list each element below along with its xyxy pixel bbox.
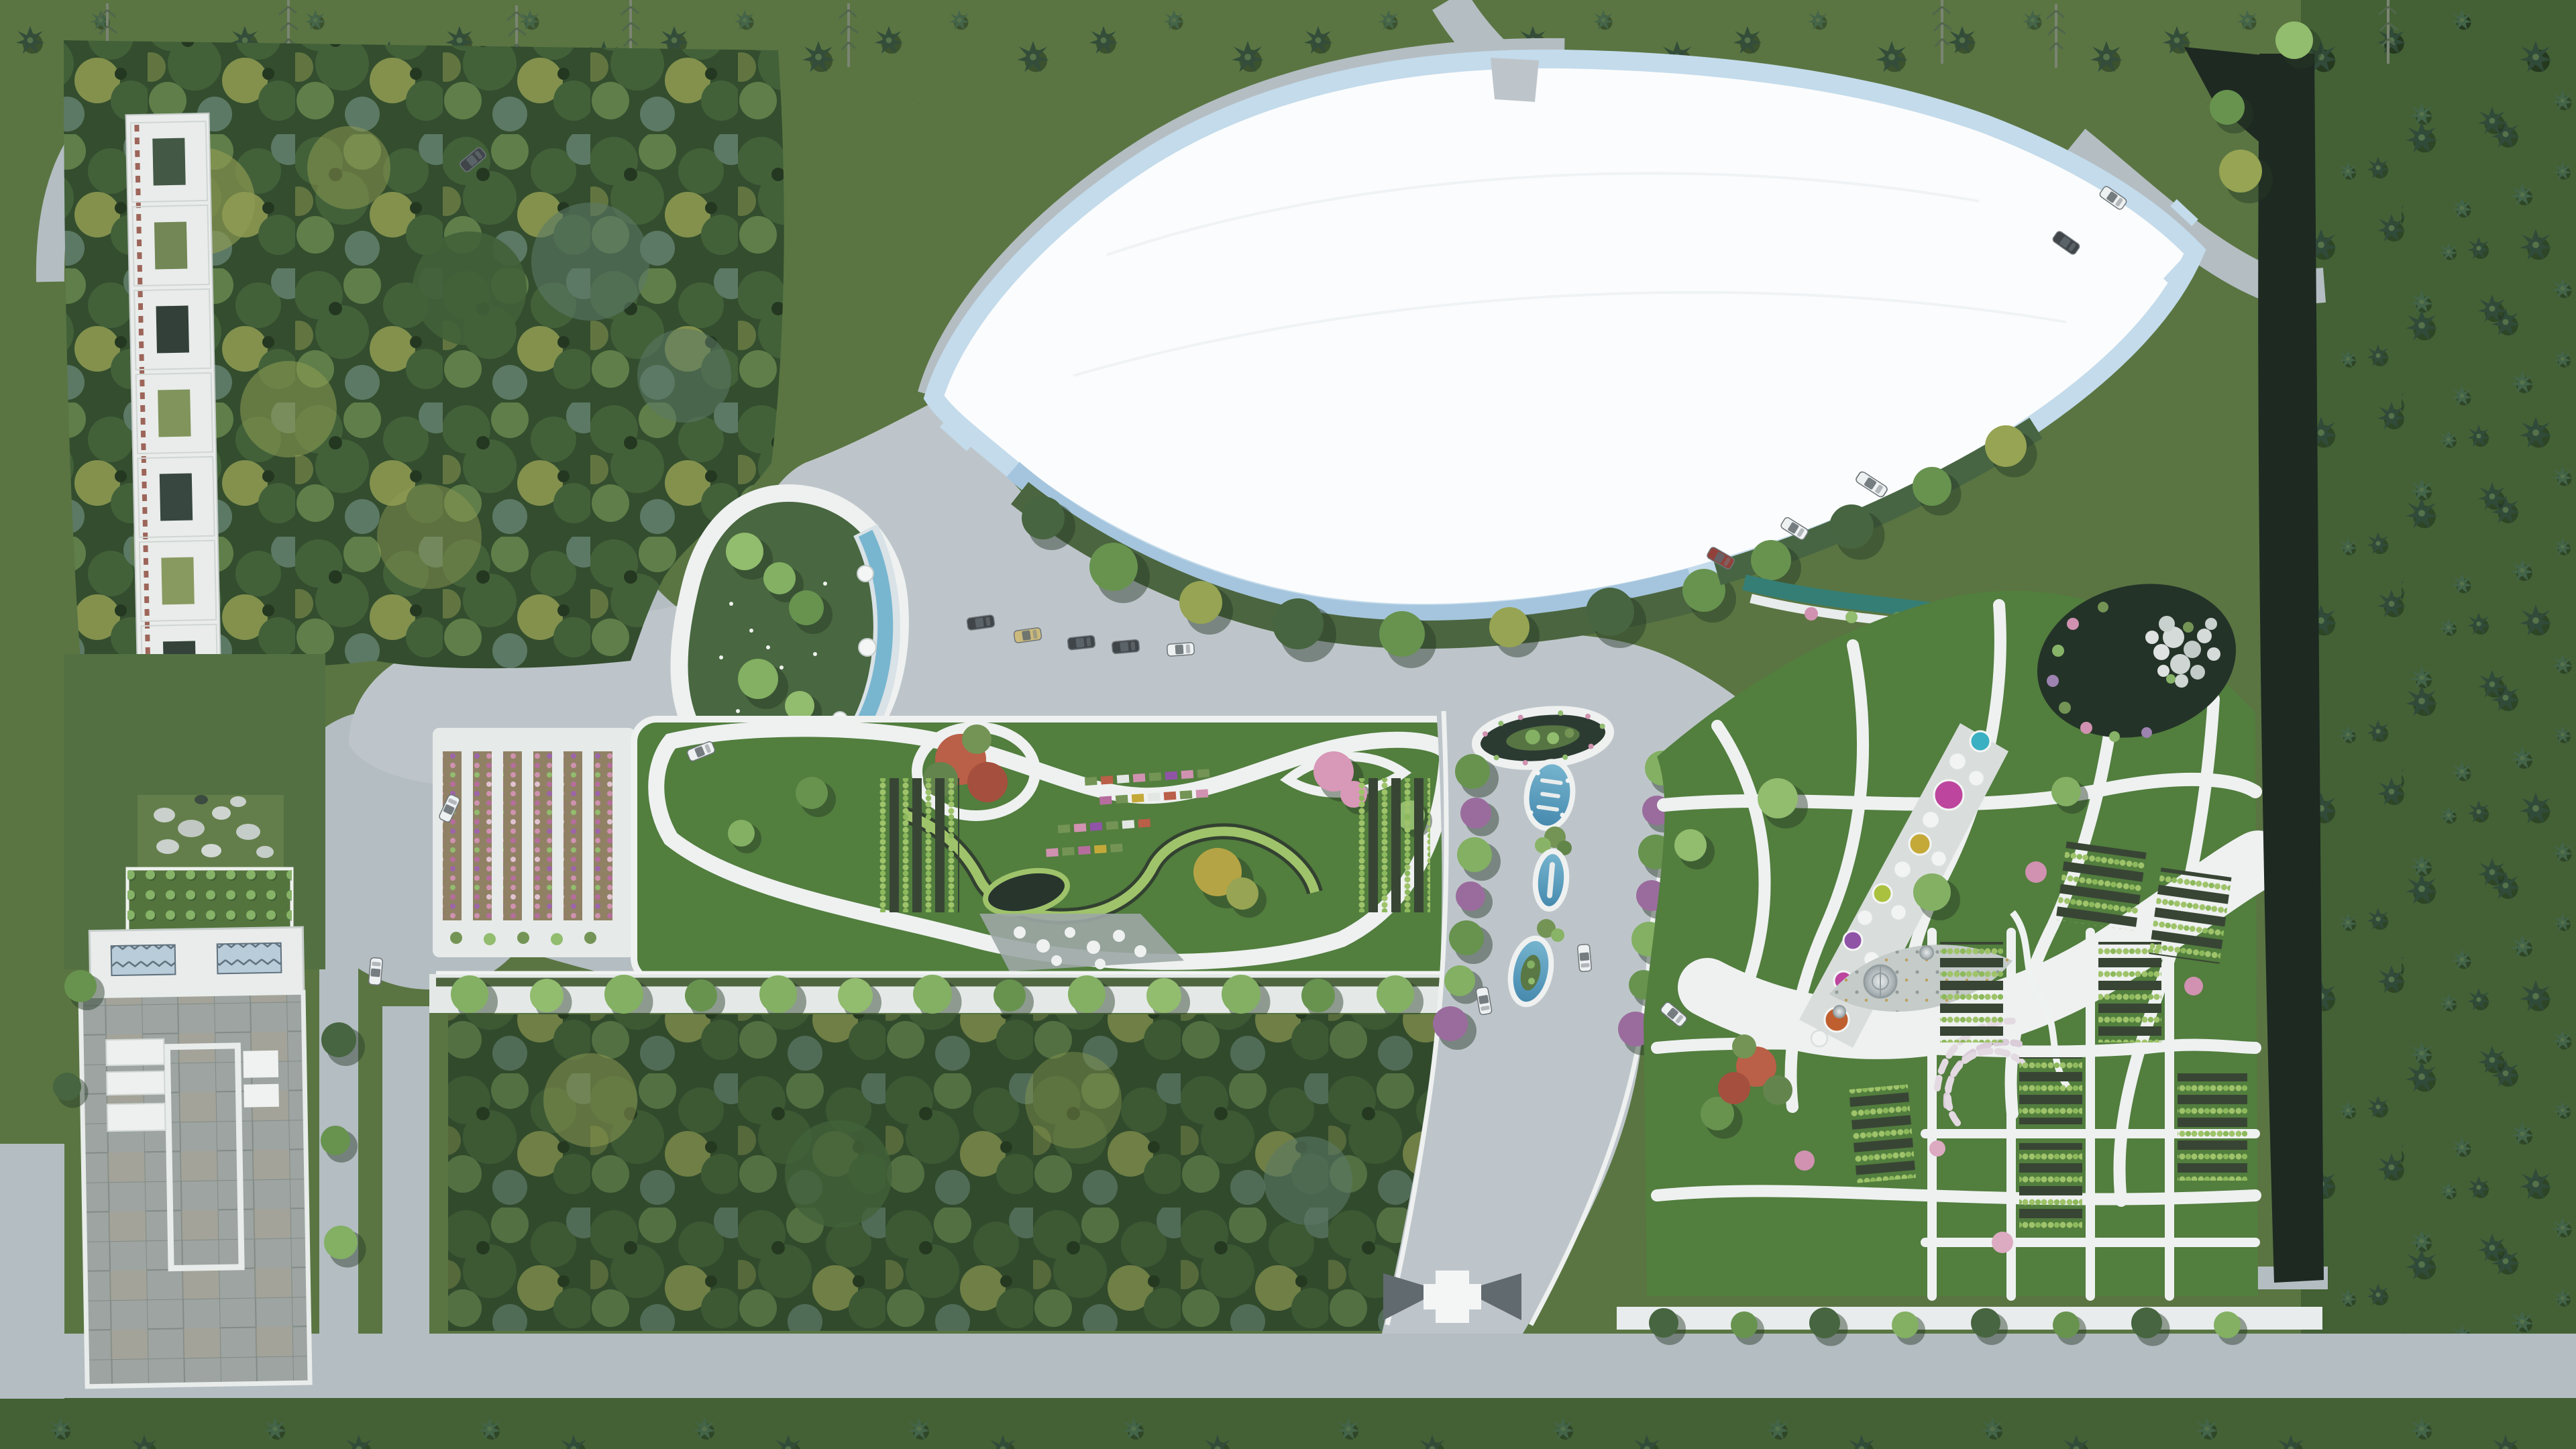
site-plan-canvas: Spruce and pine forest belt along east e… xyxy=(0,0,2576,1449)
atmosphere-haze xyxy=(0,0,2576,1449)
aerial-site-plan: Spruce and pine forest belt along east e… xyxy=(0,0,2576,1449)
